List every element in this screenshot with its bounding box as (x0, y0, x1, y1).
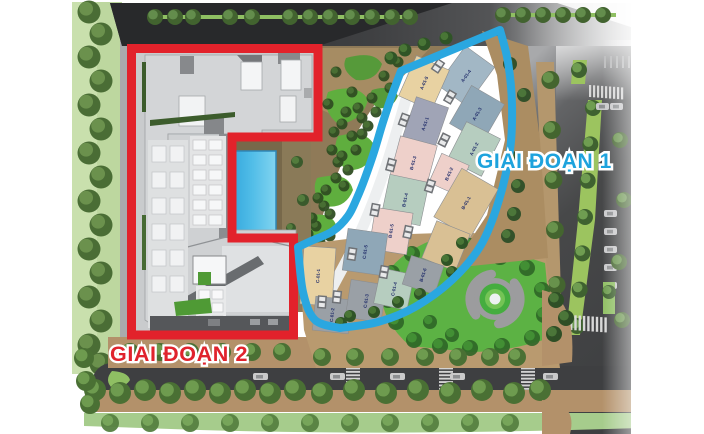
svg-text:GIAI ĐOẠN 1: GIAI ĐOẠN 1 (477, 150, 612, 173)
svg-text:GIAI ĐOẠN 2: GIAI ĐOẠN 2 (110, 342, 248, 366)
svg-text:C-01-1: C-01-1 (315, 268, 321, 283)
